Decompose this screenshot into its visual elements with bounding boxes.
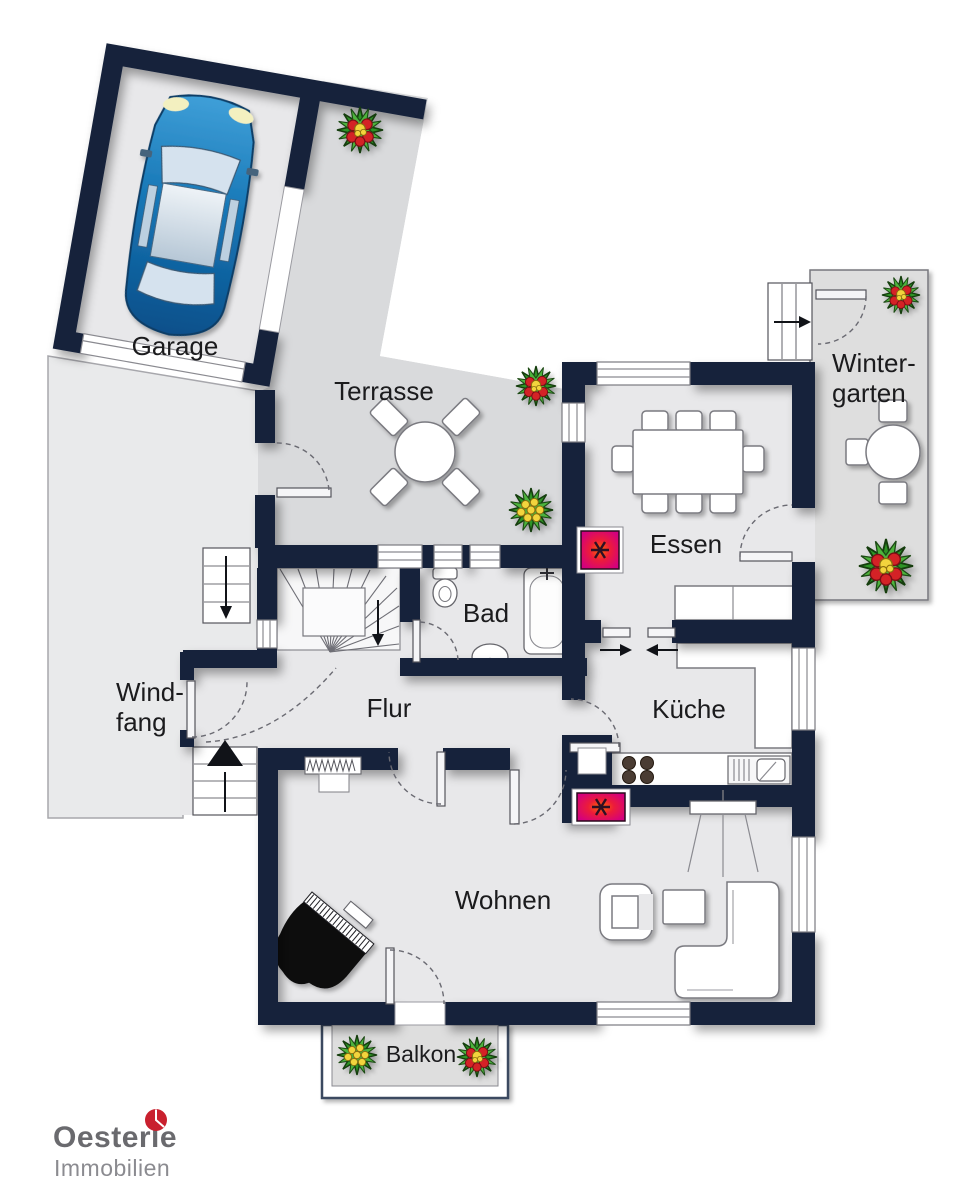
chimney-flue xyxy=(578,748,606,774)
room-label-flur: Flur xyxy=(367,693,412,723)
window xyxy=(434,545,462,568)
room-label-essen: Essen xyxy=(650,529,722,559)
fireplace-icon xyxy=(572,789,630,825)
balcony-door-opening xyxy=(395,1002,445,1025)
room-label-kueche: Küche xyxy=(652,694,726,724)
sideboard-icon xyxy=(675,586,793,620)
window xyxy=(562,403,585,442)
window xyxy=(597,362,690,385)
room-label-wintergarten-2: garten xyxy=(832,378,906,408)
kitchen-sink-icon xyxy=(728,756,790,784)
room-label-wintergarten-1: Winter- xyxy=(832,348,916,378)
window xyxy=(597,1002,690,1025)
room-label-balkon: Balkon xyxy=(386,1041,456,1067)
room-label-windfang-2: fang xyxy=(116,707,167,737)
room-label-wohnen: Wohnen xyxy=(455,885,551,915)
logo-division-name: Immobilien xyxy=(54,1155,170,1181)
armchair-icon xyxy=(600,884,653,940)
window xyxy=(792,837,815,932)
room-label-windfang-1: Wind- xyxy=(116,677,184,707)
cellar-stairs xyxy=(203,548,250,623)
window xyxy=(378,545,422,568)
room-label-terrasse: Terrasse xyxy=(334,376,434,406)
company-logo: Oesterle Immobilien xyxy=(53,1109,177,1181)
floor-plan-svg: Garage Terrasse Winter- garten Essen Bad… xyxy=(0,0,968,1200)
floor-plan-page: Garage Terrasse Winter- garten Essen Bad… xyxy=(0,0,968,1200)
entrance-steps xyxy=(193,740,257,815)
main-staircase xyxy=(277,568,400,652)
window xyxy=(257,620,277,648)
room-label-garage: Garage xyxy=(132,331,219,361)
window xyxy=(470,545,500,568)
window xyxy=(792,648,815,730)
toilet-icon xyxy=(433,568,457,607)
room-label-bad: Bad xyxy=(463,598,509,628)
coffee-table-icon xyxy=(663,890,705,924)
fireplace-icon xyxy=(577,527,623,573)
